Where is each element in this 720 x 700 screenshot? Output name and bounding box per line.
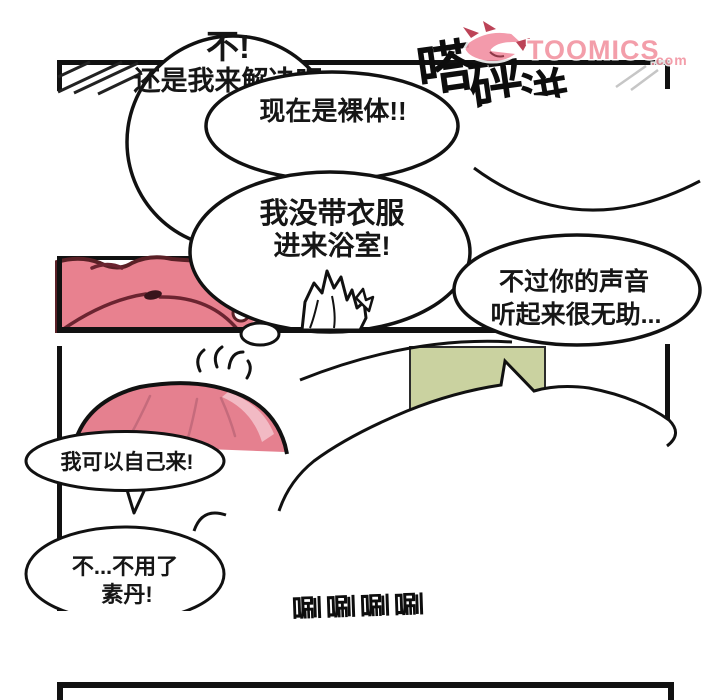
bubble-3-line-2: 进来浴室!: [274, 230, 391, 261]
bubble-1-line-1: 不!: [206, 28, 250, 65]
toomics-logo: TOOMICS .com: [463, 21, 688, 68]
wall-hatch-left: [58, 62, 142, 94]
comic-artwork: 嗒 砰 洴 不! 还是我来解决吧 现在是裸体!! 我没带衣服 进来浴室! 不过你…: [0, 0, 720, 700]
panel-4-frame: [57, 682, 674, 700]
strip-clip: [0, 611, 720, 681]
toomics-logo-tld: .com: [651, 52, 688, 68]
bubble-5-line-1: 我可以自己来!: [61, 450, 194, 474]
speech-bubble-2: 现在是裸体!!: [206, 72, 458, 180]
speech-bubble-6: 不...不用了 素丹!: [26, 527, 224, 621]
bubble-3-line-1: 我没带衣服: [259, 197, 405, 230]
suds-blob: [241, 323, 279, 345]
comic-page: 嗒 砰 洴 不! 还是我来解决吧 现在是裸体!! 我没带衣服 进来浴室! 不过你…: [0, 0, 720, 700]
speech-bubble-4: 不过你的声音 听起来很无助...: [454, 235, 700, 345]
panel-2-bottom-border: [57, 327, 527, 333]
toomics-logo-text: TOOMICS: [527, 35, 660, 65]
door-speech-bubble: [277, 361, 679, 611]
bubble-6-line-1: 不...不用了: [72, 554, 178, 579]
head-outline: [194, 513, 226, 531]
bubble-4-line-1: 不过你的声音: [499, 267, 649, 296]
empty-bubble-arc: [474, 168, 700, 210]
wall-hatch-right: [616, 66, 658, 90]
bubble-6-line-2: 素丹!: [101, 582, 152, 607]
speech-bubble-5: 我可以自己来!: [26, 432, 224, 514]
startle-marks: [198, 347, 251, 378]
bubble-4-line-2: 听起来很无助...: [491, 301, 662, 329]
bubble-2-line-1: 现在是裸体!!: [259, 96, 406, 126]
toomics-mascot-icon: [463, 21, 530, 62]
